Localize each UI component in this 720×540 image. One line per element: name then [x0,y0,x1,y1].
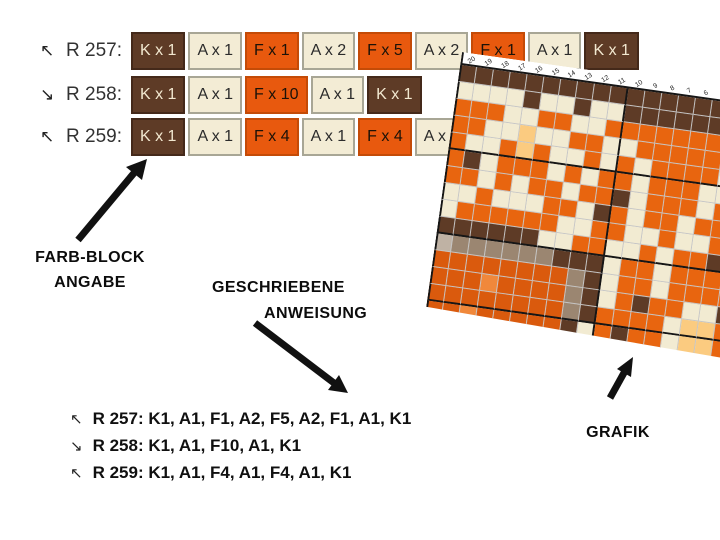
written-instruction-line: ↖R 257: K1, A1, F1, A2, F5, A2, F1, A1, … [70,405,411,432]
written-instruction-text: R 259: K1, A1, F4, A1, F4, A1, K1 [93,463,352,483]
color-block-a: A x 1 [188,32,242,70]
arrow-to-color-blocks [78,159,147,240]
label-geschriebene-anweisung: GESCHRIEBENE ANWEISUNG [212,275,367,327]
chart-cell [711,341,720,360]
direction-arrow-icon: ↖ [70,410,83,428]
direction-arrow-icon: ↘ [70,437,83,455]
label-farb-block-line2: ANGABE [20,270,160,295]
chart-cell [425,301,444,320]
direction-arrow-icon: ↘ [40,85,66,105]
chart-cell [627,329,646,348]
chart-column-number: 7 [680,83,698,96]
color-block-a: A x 1 [311,76,365,114]
color-block-f: F x 4 [245,118,299,156]
row-label: R 258: [66,84,122,106]
arrow-to-grafik [610,357,633,398]
chart-cell [526,315,545,334]
written-instruction-line: ↖R 259: K1, A1, F4, A1, F4, A1, K1 [70,459,411,486]
direction-arrow-icon: ↖ [70,464,83,482]
row-label: R 257: [66,40,122,62]
chart-column-number: 11 [613,73,631,86]
chart-cell [593,324,612,343]
chart-column-number: 15 [546,64,564,77]
knitting-chart-grafik: 2019181716151413121110987654321 [425,52,720,365]
chart-cell [475,308,494,327]
chart-cell [610,327,629,346]
chart-cell [543,317,562,336]
color-blocks: K x 1A x 1F x 10A x 1K x 1 [131,76,422,114]
direction-arrow-icon: ↖ [40,127,66,147]
chart-column-number: 16 [529,62,547,75]
color-block-a: A x 2 [302,32,356,70]
label-farb-block-angabe: FARB-BLOCK ANGABE [20,245,160,295]
label-geschriebene-line2: ANWEISUNG [264,301,367,327]
chart-grid [425,65,720,365]
knitting-instruction-diagram: ↖R 257:K x 1A x 1F x 1A x 2F x 5A x 2F x… [0,0,720,540]
chart-cell [492,310,511,329]
row-label: R 259: [66,126,122,148]
chart-cell [442,303,461,322]
color-block-k: K x 1 [131,32,185,70]
color-block-a: A x 1 [302,118,356,156]
chart-cell [576,322,595,341]
label-grafik: GRAFIK [568,424,668,442]
chart-column-number: 6 [697,85,715,98]
chart-column-number: 8 [663,81,681,94]
chart-column-number: 13 [580,69,598,82]
color-block-f: F x 4 [358,118,412,156]
chart-column-number: 19 [479,55,497,68]
chart-cell [644,331,663,350]
color-block-k: K x 1 [584,32,638,70]
color-block-a: A x 1 [188,76,242,114]
color-blocks: K x 1A x 1F x 1A x 2F x 5A x 2F x 1A x 1… [131,32,639,70]
chart-column-number: 12 [596,71,614,84]
chart-column-number: 18 [496,57,514,70]
instruction-row-258: ↘R 258:K x 1A x 1F x 10A x 1K x 1 [40,76,422,114]
chart-cell [509,312,528,331]
color-block-a: A x 1 [188,118,242,156]
color-block-f: F x 5 [358,32,412,70]
written-instruction-line: ↘R 258: K1, A1, F10, A1, K1 [70,432,411,459]
chart-cell [458,305,477,324]
color-block-f: F x 1 [245,32,299,70]
color-block-k: K x 1 [131,76,185,114]
written-instruction-text: R 258: K1, A1, F10, A1, K1 [93,436,302,456]
chart-column-number: 10 [630,76,648,89]
chart-cell [559,319,578,338]
written-instructions: ↖R 257: K1, A1, F1, A2, F5, A2, F1, A1, … [70,405,411,486]
written-instruction-text: R 257: K1, A1, F1, A2, F5, A2, F1, A1, K… [93,409,412,429]
color-block-k: K x 1 [367,76,421,114]
chart-column-number: 5 [714,88,720,101]
arrow-to-written-instructions [255,323,348,393]
color-block-k: K x 1 [131,118,185,156]
chart-column-number: 9 [647,78,665,91]
direction-arrow-icon: ↖ [40,41,66,61]
label-geschriebene-line1: GESCHRIEBENE [212,275,367,301]
color-block-f: F x 10 [245,76,307,114]
label-farb-block-line1: FARB-BLOCK [20,245,160,270]
chart-column-number: 17 [513,59,531,72]
chart-column-number: 20 [462,52,480,65]
chart-column-number: 14 [563,66,581,79]
